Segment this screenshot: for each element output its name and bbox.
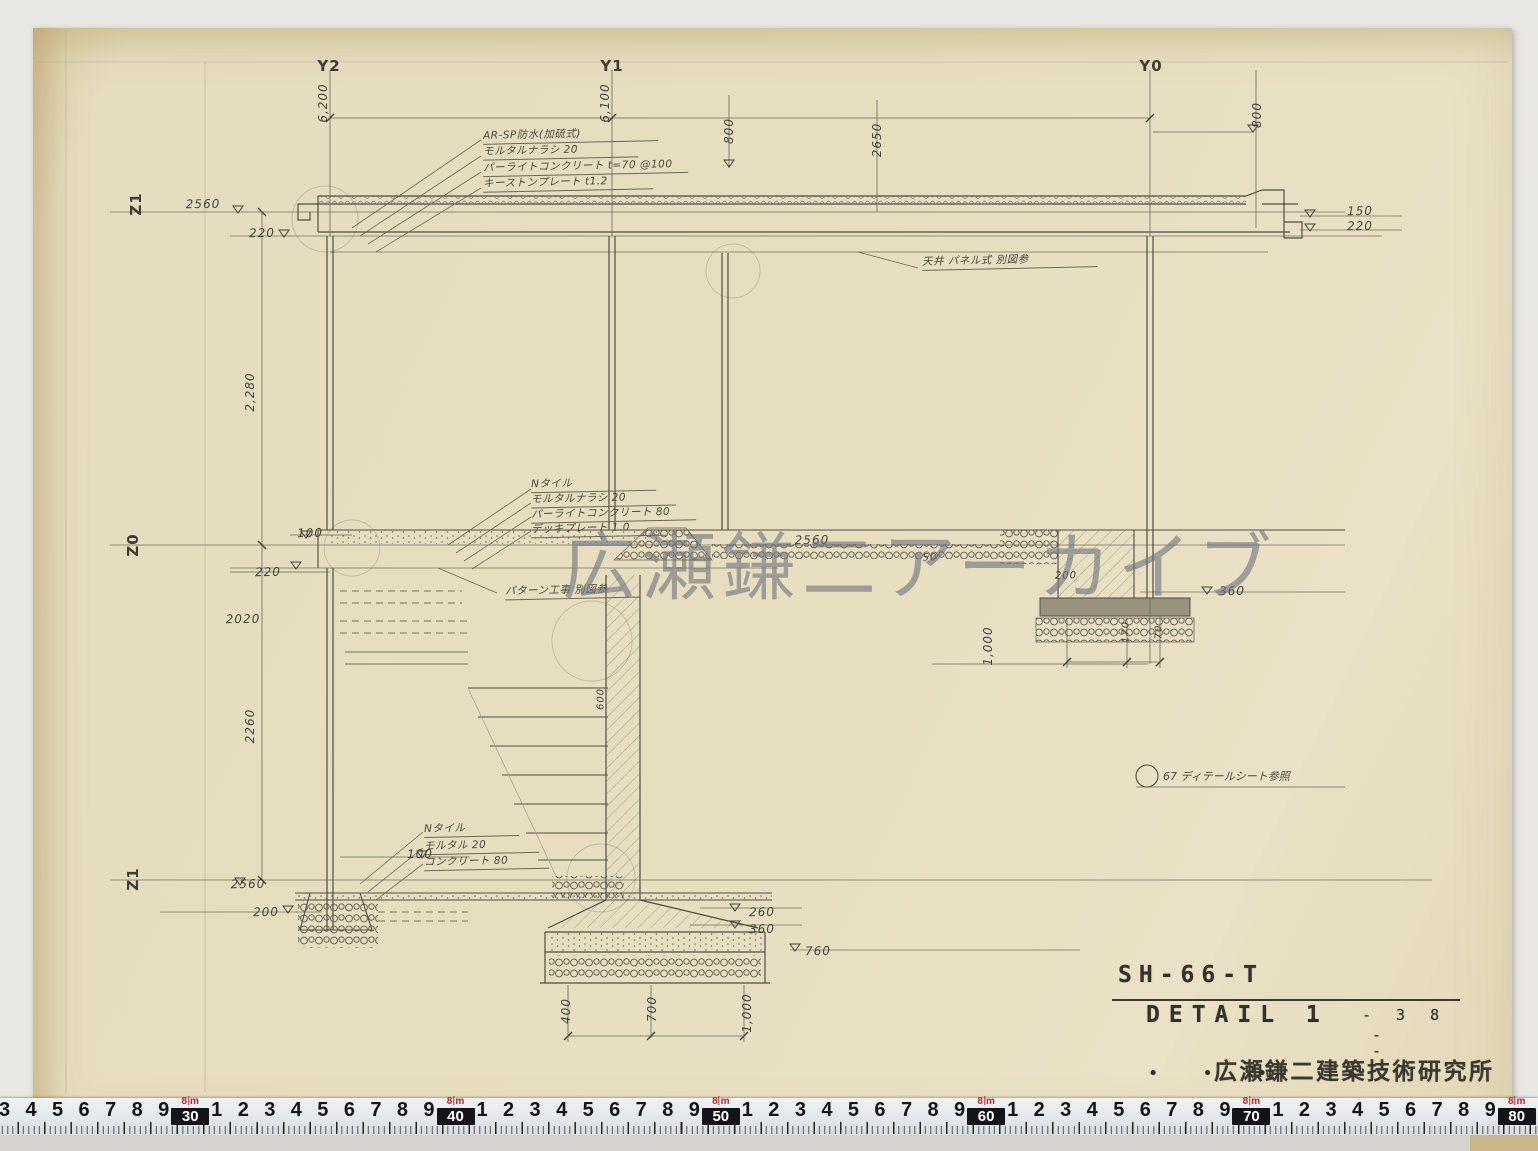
title-rule <box>1112 999 1460 1001</box>
grid-label-y0: Y0 <box>1139 57 1162 75</box>
dim-upper-2280: 2,280 <box>243 372 257 411</box>
dim-ground-760: 760 <box>805 944 831 958</box>
dim-mid-2020: 2020 <box>226 612 261 627</box>
roof-callout-4: キーストンプレート t1.2 <box>483 172 653 193</box>
dim-mid-70: 70 <box>1154 625 1165 640</box>
dim-footing-400: 400 <box>559 998 573 1024</box>
grid-label-z0: Z0 <box>124 533 142 556</box>
dim-topright-220: 220 <box>1347 219 1373 233</box>
ruler-cm-ticks <box>0 1122 1538 1134</box>
grid-label-z1-top: Z1 <box>127 192 145 215</box>
dim-y2-span: 6,200 <box>316 83 330 122</box>
dim-footing-700: 700 <box>645 996 659 1022</box>
dim-ground-2560: 2560 <box>231 877 266 892</box>
dim-800-b: 800 <box>1250 102 1264 128</box>
dim-footing-1000: 1,000 <box>740 993 754 1032</box>
grid-label-y2: Y2 <box>317 57 340 75</box>
ground-callout-1: Nタイル <box>424 819 519 838</box>
dim-roof-220: 220 <box>249 226 275 240</box>
firm-name: 広瀬鎌二建築技術研究所 <box>1214 1052 1495 1086</box>
dim-mid-1000: 1,000 <box>981 626 995 665</box>
scan-bottom-margin <box>0 1135 1538 1151</box>
dim-2650: 2650 <box>870 123 884 158</box>
ground-callout-3: コンクリート 80 <box>424 852 549 872</box>
dim-y1-span: 6,100 <box>598 83 612 122</box>
drawing-sheet-scan: Y2 Y1 Y0 Z1 Z0 Z1 AR-SP防水(加硫式) モルタルナラシ 2… <box>0 0 1538 1151</box>
sheet-number: - 3 8 <box>1362 1006 1447 1024</box>
dim-mid-170: 170 <box>1121 621 1132 643</box>
dim-roof-2560: 2560 <box>186 197 221 212</box>
archive-watermark: 広瀬鎌二アーカイブ <box>562 528 1278 609</box>
grid-label-y1: Y1 <box>600 57 623 75</box>
detail-ref-note: 67 ディテールシート参照 <box>1163 768 1290 784</box>
sheet-title: DETAIL 1 <box>1146 1002 1329 1028</box>
dim-topright-150: 150 <box>1347 204 1373 218</box>
dim-ground-260: 260 <box>749 905 775 919</box>
dim-ground-360: 360 <box>749 922 775 936</box>
grid-label-z1-bottom: Z1 <box>124 867 142 890</box>
ruler: 34567898m301234567898m401234567898m50123… <box>0 1098 1538 1135</box>
dim-ground-100: 100 <box>407 847 433 861</box>
dim-mid-100: 100 <box>297 526 323 540</box>
dim-mid-220: 220 <box>255 565 281 579</box>
scan-bottom-margin-right <box>1470 1135 1538 1151</box>
dim-ground-200: 200 <box>253 905 279 919</box>
sheet-code: SH-66-T <box>1118 962 1264 988</box>
dim-800-a: 800 <box>722 118 736 144</box>
dim-lower-2260: 2260 <box>243 709 257 744</box>
dim-stair-600: 600 <box>596 688 607 710</box>
